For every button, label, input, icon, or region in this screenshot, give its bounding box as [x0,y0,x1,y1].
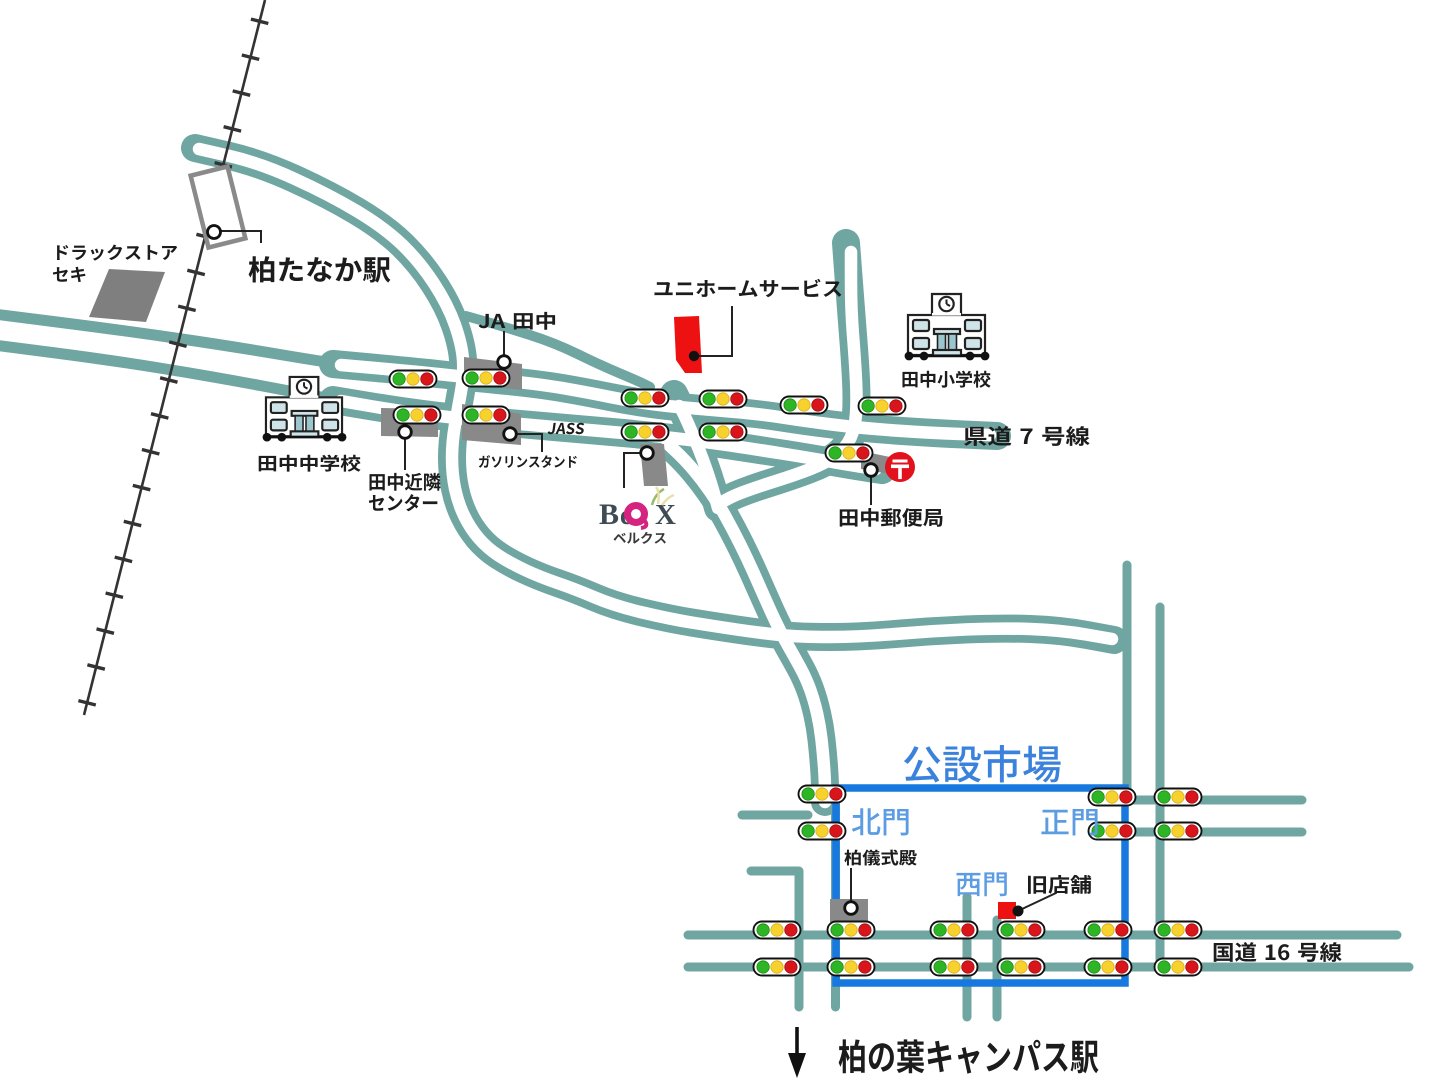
svg-text:B: B [599,498,619,531]
